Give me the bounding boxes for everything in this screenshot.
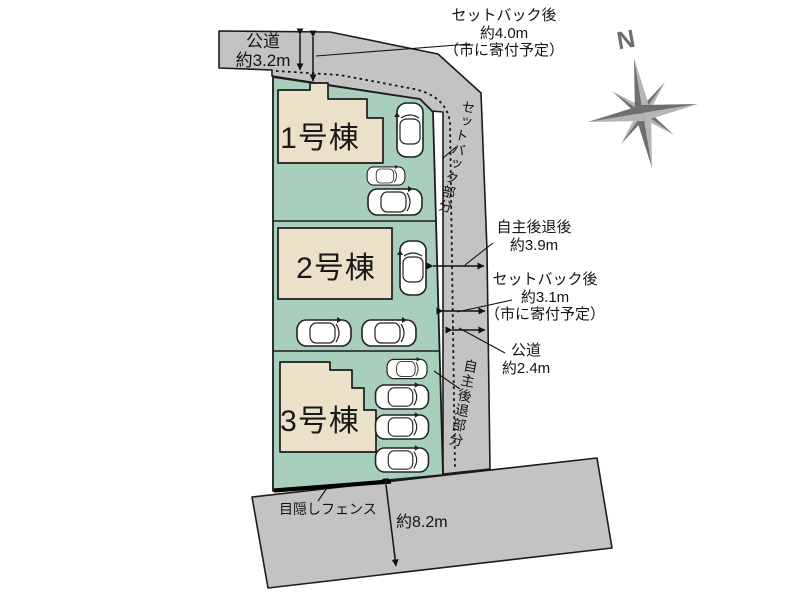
- label-voluntary-after-l2: 約3.9m: [477, 237, 591, 255]
- label-building-2: 2号棟: [276, 251, 396, 286]
- label-right-road: 公道 約2.4m: [478, 342, 574, 377]
- label-voluntary-after: 自主後退後 約3.9m: [477, 219, 591, 254]
- car-icon: [394, 103, 423, 157]
- car-icon: [397, 241, 426, 295]
- compass-rose-icon: [588, 58, 698, 168]
- label-setback-top: セットバック後 約4.0m （市に寄付予定）: [424, 7, 584, 60]
- car-icon: [368, 186, 422, 215]
- car-icon: [376, 382, 429, 409]
- building-2-name: 2号棟: [276, 251, 396, 286]
- label-setback-top-l2: 約4.0m: [424, 25, 584, 43]
- building-3-name: 3号棟: [260, 404, 380, 439]
- label-setback-top-l3: （市に寄付予定）: [424, 42, 584, 60]
- label-right-road-name: 公道: [478, 342, 574, 360]
- car-icon: [376, 412, 429, 439]
- label-voluntary-after-l1: 自主後退後: [477, 219, 591, 237]
- label-setback-top-l1: セットバック後: [424, 7, 584, 25]
- label-bottom-width-text: 約8.2m: [396, 514, 468, 533]
- label-building-1: 1号棟: [260, 121, 380, 156]
- car-icon: [362, 317, 416, 346]
- label-setback-right-l1: セットバック後: [466, 271, 624, 289]
- car-icon: [387, 357, 427, 378]
- label-building-3: 3号棟: [260, 404, 380, 439]
- car-icon: [367, 165, 405, 185]
- label-setback-right-l2: 約3.1m: [466, 289, 624, 307]
- label-fence: 目隠しフェンス: [279, 501, 371, 518]
- car-icon: [297, 317, 351, 346]
- car-icon: [376, 445, 429, 472]
- site-plan-diagram: 公道 約3.2m セットバック後 約4.0m （市に寄付予定） 自主後退後 約3…: [0, 0, 800, 600]
- label-right-road-width: 約2.4m: [478, 360, 574, 378]
- label-fence-text: 目隠しフェンス: [279, 501, 371, 518]
- label-top-road-width: 約3.2m: [221, 51, 305, 70]
- label-setback-right: セットバック後 約3.1m （市に寄付予定）: [466, 271, 624, 324]
- label-setback-right-l3: （市に寄付予定）: [466, 306, 624, 324]
- label-top-road-name: 公道: [221, 32, 305, 51]
- label-bottom-width: 約8.2m: [396, 514, 468, 533]
- label-top-road: 公道 約3.2m: [221, 32, 305, 70]
- site-plan-canvas: [0, 0, 800, 600]
- building-1-name: 1号棟: [260, 121, 380, 156]
